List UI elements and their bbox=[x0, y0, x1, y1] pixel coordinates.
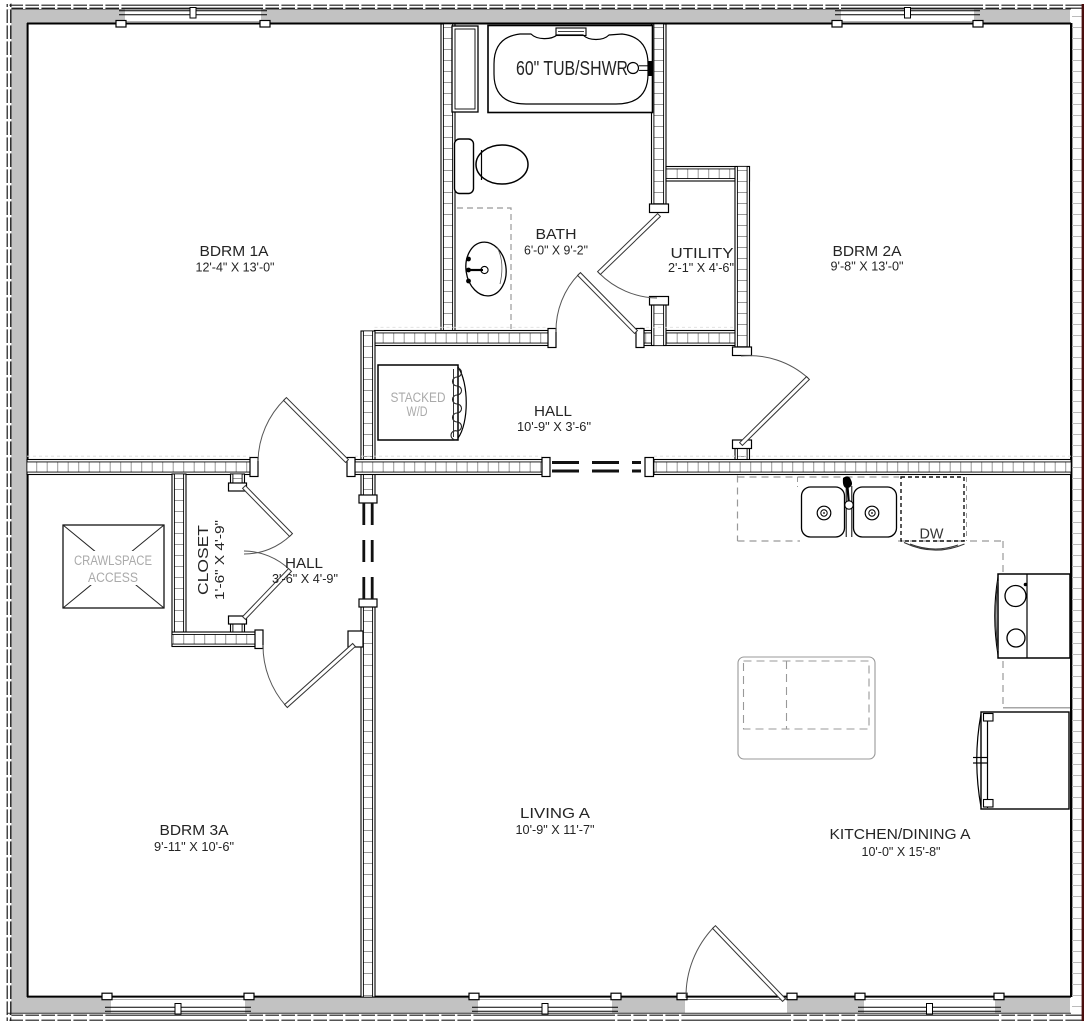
svg-text:10'-9" X 11'-7": 10'-9" X 11'-7" bbox=[516, 823, 595, 837]
svg-text:LIVING A: LIVING A bbox=[520, 805, 590, 822]
svg-text:W/D: W/D bbox=[407, 404, 428, 419]
svg-text:6'-0" X 9'-2": 6'-0" X 9'-2" bbox=[524, 244, 588, 258]
svg-text:STACKED: STACKED bbox=[391, 390, 446, 405]
svg-text:60" TUB/SHWR: 60" TUB/SHWR bbox=[516, 58, 628, 80]
svg-text:BDRM 3A: BDRM 3A bbox=[160, 822, 229, 839]
svg-text:3'-6" X 4'-9": 3'-6" X 4'-9" bbox=[272, 572, 338, 586]
svg-text:BDRM 2A: BDRM 2A bbox=[833, 243, 902, 260]
svg-text:10'-9" X 3'-6": 10'-9" X 3'-6" bbox=[517, 420, 591, 434]
svg-text:1'-6" X 4'-9": 1'-6" X 4'-9" bbox=[213, 520, 227, 600]
svg-text:CLOSET: CLOSET bbox=[195, 525, 212, 595]
svg-text:2'-1" X 4'-6": 2'-1" X 4'-6" bbox=[668, 261, 734, 275]
svg-text:9'-11" X 10'-6": 9'-11" X 10'-6" bbox=[154, 840, 234, 854]
svg-text:HALL: HALL bbox=[534, 403, 572, 420]
svg-text:12'-4" X 13'-0": 12'-4" X 13'-0" bbox=[196, 261, 275, 275]
svg-text:10'-0" X 15'-8": 10'-0" X 15'-8" bbox=[862, 845, 941, 859]
svg-text:BATH: BATH bbox=[536, 226, 577, 243]
svg-text:BDRM 1A: BDRM 1A bbox=[200, 243, 269, 260]
svg-text:UTILITY: UTILITY bbox=[671, 245, 734, 262]
svg-text:CRAWLSPACE: CRAWLSPACE bbox=[74, 553, 152, 568]
svg-text:KITCHEN/DINING A: KITCHEN/DINING A bbox=[830, 826, 971, 843]
svg-text:DW: DW bbox=[920, 526, 945, 543]
svg-text:9'-8" X 13'-0": 9'-8" X 13'-0" bbox=[831, 260, 904, 274]
svg-text:HALL: HALL bbox=[285, 555, 323, 572]
svg-text:ACCESS: ACCESS bbox=[88, 570, 138, 585]
